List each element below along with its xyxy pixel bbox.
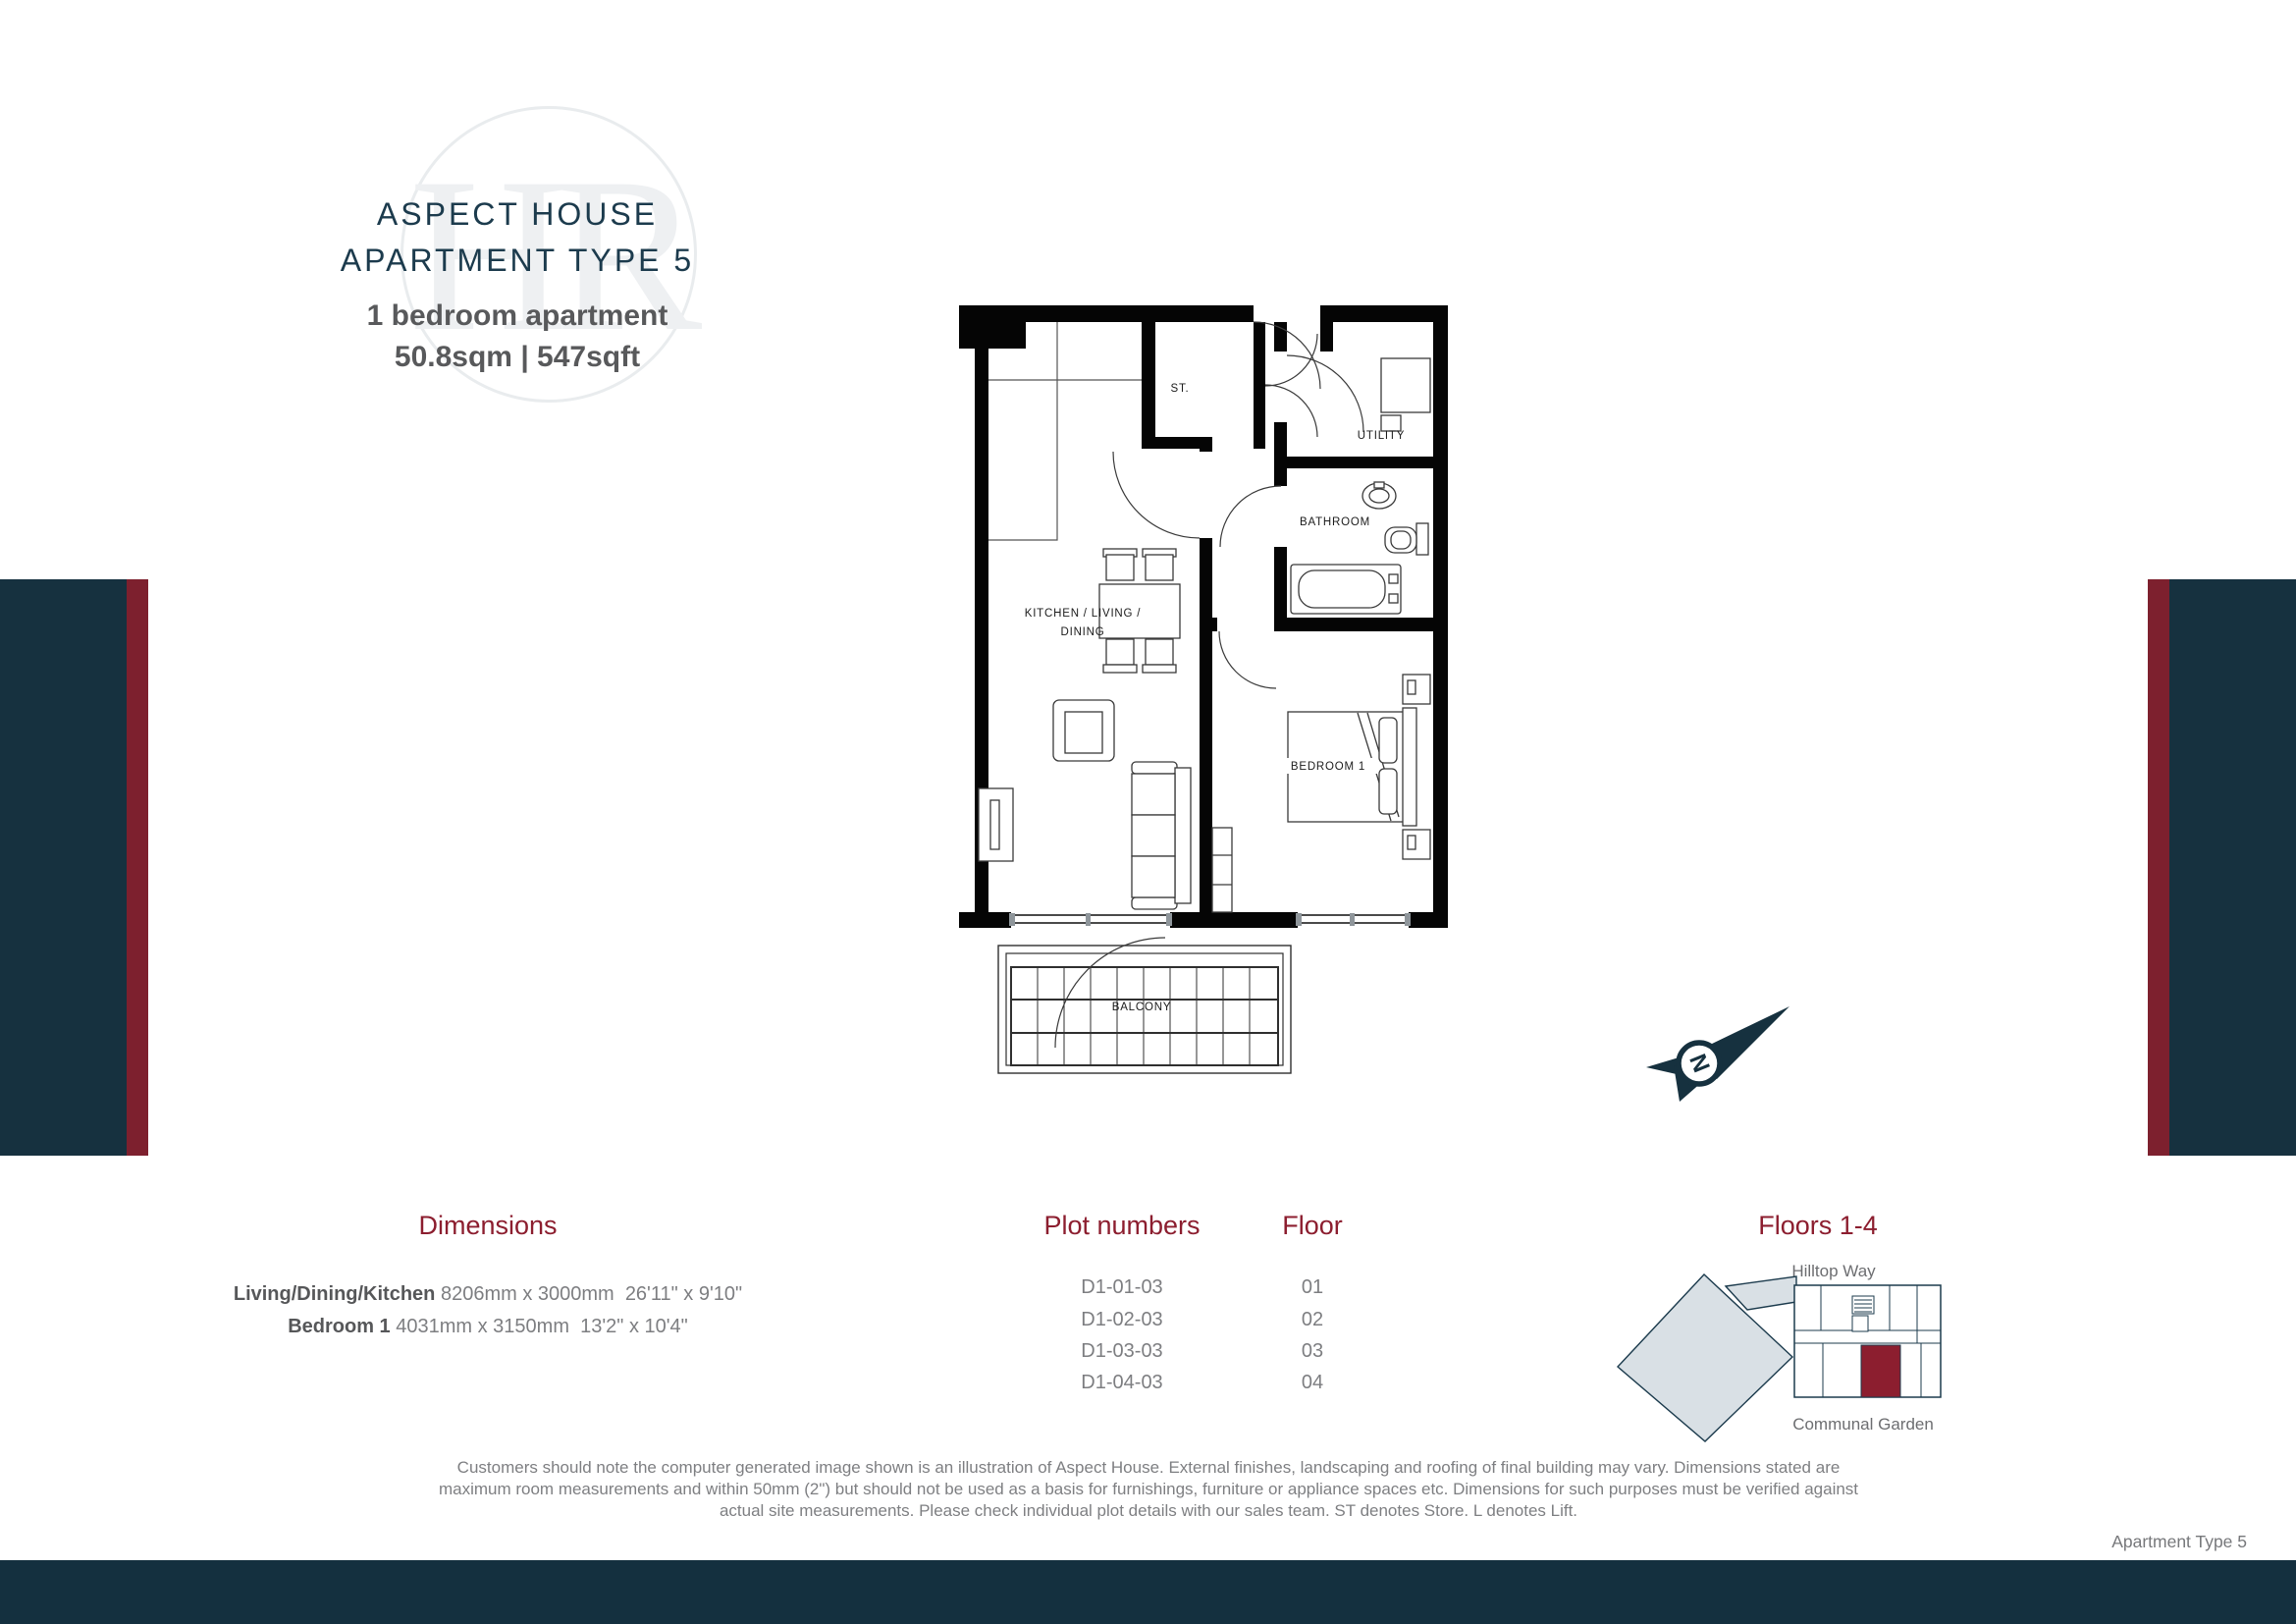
bedside-table	[1403, 830, 1430, 859]
site-plan: Hilltop Way Communal Garden	[1610, 1257, 2022, 1453]
floor-plan: ST. UTILITY BATHROOM KITCHEN / LIVING / …	[937, 290, 1472, 1085]
plot-number: D1-01-03	[1081, 1276, 1162, 1299]
footer-bar	[0, 1560, 2296, 1624]
sofa-back	[1175, 768, 1191, 903]
brochure-page: HR ASPECT HOUSE APARTMENT TYPE 5 1 bedro…	[0, 0, 2296, 1624]
kitchen-counter-lines	[988, 322, 1142, 540]
basin-tap	[1374, 482, 1384, 488]
dimension-row: Living/Dining/Kitchen 8206mm x 3000mm 26…	[234, 1283, 742, 1306]
stair-core	[1852, 1296, 1874, 1314]
floors-1-4-heading: Floors 1-4	[1758, 1211, 1878, 1241]
headboard	[1403, 708, 1416, 826]
floor-heading: Floor	[1282, 1211, 1343, 1241]
kitchen-label-line2: DINING	[1060, 626, 1104, 638]
plot-numbers-heading: Plot numbers	[1043, 1211, 1200, 1241]
apartment-subtitle: 1 bedroom apartment	[367, 299, 668, 333]
tv	[990, 800, 999, 849]
left-band-navy	[0, 579, 127, 1156]
dining-chair	[1106, 639, 1134, 665]
floor-number: 04	[1302, 1372, 1323, 1394]
apartment-area: 50.8sqm | 547sqft	[395, 341, 640, 374]
north-compass-icon: N	[1634, 997, 1801, 1110]
lift-core	[1852, 1316, 1868, 1331]
plot-number: D1-03-03	[1081, 1340, 1162, 1363]
bath-tap	[1389, 594, 1398, 603]
dining-chair	[1106, 555, 1134, 580]
disclaimer-line3: actual site measurements. Please check i…	[720, 1501, 1577, 1521]
bath-tap	[1389, 574, 1398, 583]
street-label: Hilltop Way	[1791, 1262, 1876, 1280]
disclaimer-line1: Customers should note the computer gener…	[457, 1458, 1841, 1478]
floor-number: 02	[1302, 1309, 1323, 1331]
garden-label: Communal Garden	[1792, 1415, 1934, 1434]
kitchen-label-line1: KITCHEN / LIVING /	[1025, 608, 1142, 620]
toilet-cistern	[1416, 523, 1428, 555]
page-title-line1: ASPECT HOUSE	[377, 196, 658, 233]
dining-chair	[1146, 639, 1173, 665]
bathroom-label: BATHROOM	[1300, 516, 1370, 528]
room-name: Bedroom 1	[288, 1316, 390, 1337]
page-title-line2: APARTMENT TYPE 5	[341, 243, 694, 279]
bedside-table	[1403, 675, 1430, 704]
utility-cupboard	[1381, 415, 1401, 431]
store-label: ST.	[1170, 383, 1189, 395]
sofa-cushion	[1132, 774, 1175, 815]
bedside-lamp	[1408, 680, 1415, 694]
dining-chair	[1103, 665, 1137, 673]
right-band-navy	[2169, 579, 2296, 1156]
sofa-arm	[1132, 762, 1177, 774]
dining-chair	[1146, 555, 1173, 580]
basin-inner	[1369, 489, 1389, 503]
room-name: Living/Dining/Kitchen	[234, 1283, 436, 1305]
floor-number: 01	[1302, 1276, 1323, 1299]
floor-number: 03	[1302, 1340, 1323, 1363]
disclaimer-line2: maximum room measurements and within 50m…	[439, 1480, 1858, 1499]
left-band-red-stripe	[127, 579, 148, 1156]
dimension-row: Bedroom 1 4031mm x 3150mm 13'2" x 10'4"	[288, 1316, 688, 1338]
bedroom-label: BEDROOM 1	[1291, 761, 1365, 773]
dimensions-heading: Dimensions	[418, 1211, 557, 1241]
sofa-cushion	[1132, 815, 1175, 856]
sofa-arm	[1132, 897, 1177, 909]
pillow	[1379, 769, 1397, 814]
armchair-seat	[1065, 712, 1102, 753]
utility-label: UTILITY	[1358, 430, 1405, 442]
room-dimensions: 8206mm x 3000mm 26'11" x 9'10"	[441, 1283, 742, 1305]
pillow	[1379, 718, 1397, 763]
sofa-cushion	[1132, 856, 1175, 897]
apartment-location-highlight	[1861, 1345, 1900, 1397]
utility-appliance	[1381, 358, 1430, 412]
page-footer-label: Apartment Type 5	[2111, 1532, 2247, 1552]
room-dimensions: 4031mm x 3150mm 13'2" x 10'4"	[396, 1316, 688, 1337]
bath-inner	[1299, 570, 1385, 608]
right-band-red-stripe	[2148, 579, 2169, 1156]
balcony-label: BALCONY	[1112, 1001, 1172, 1013]
plot-number: D1-04-03	[1081, 1372, 1162, 1394]
bedside-lamp	[1408, 836, 1415, 849]
plot-number: D1-02-03	[1081, 1309, 1162, 1331]
dining-chair	[1143, 665, 1176, 673]
wardrobe	[1212, 828, 1232, 912]
toilet-bowl-inner	[1391, 531, 1411, 549]
